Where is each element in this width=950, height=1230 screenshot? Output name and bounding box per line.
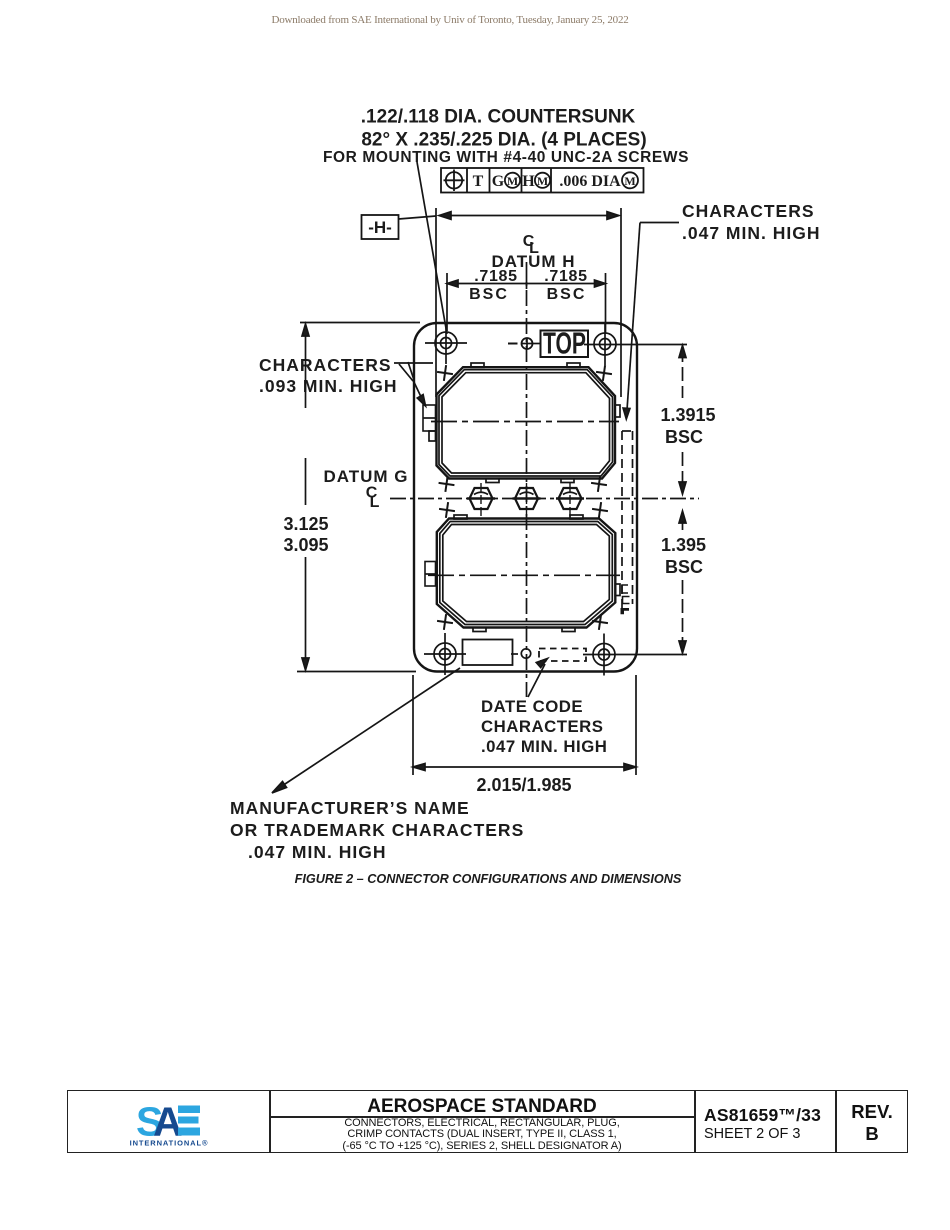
- svg-text:CHARACTERS: CHARACTERS: [682, 201, 815, 221]
- svg-text:DATE CODE: DATE CODE: [481, 697, 583, 716]
- svg-text:CHARACTERS: CHARACTERS: [259, 355, 392, 375]
- svg-text:.7185: .7185: [474, 268, 518, 285]
- svg-text:BSC: BSC: [665, 427, 703, 447]
- svg-text:BSC: BSC: [469, 286, 509, 303]
- svg-text:3.095: 3.095: [283, 535, 328, 555]
- svg-text:OR TRADEMARK CHARACTERS: OR TRADEMARK CHARACTERS: [230, 820, 524, 840]
- svg-text:.122/.118 DIA. COUNTERSUNK: .122/.118 DIA. COUNTERSUNK: [361, 107, 636, 128]
- svg-text:M: M: [624, 174, 635, 188]
- svg-text:L: L: [370, 494, 380, 511]
- svg-text:.093 MIN. HIGH: .093 MIN. HIGH: [259, 376, 397, 396]
- svg-text:3.125: 3.125: [283, 514, 328, 534]
- svg-text:1.3915: 1.3915: [660, 405, 715, 425]
- svg-text:FIGURE 2 – CONNECTOR CONFIGURA: FIGURE 2 – CONNECTOR CONFIGURATIONS AND …: [295, 872, 682, 886]
- svg-text:1.395: 1.395: [661, 535, 706, 555]
- svg-text:MANUFACTURER’S NAME: MANUFACTURER’S NAME: [230, 798, 470, 818]
- svg-text:DATUM G: DATUM G: [323, 467, 408, 486]
- svg-text:CHARACTERS: CHARACTERS: [481, 717, 603, 736]
- svg-text:.047 MIN. HIGH: .047 MIN. HIGH: [682, 223, 820, 243]
- svg-text:82° X .235/.225 DIA. (4 PLACES: 82° X .235/.225 DIA. (4 PLACES): [361, 130, 646, 151]
- svg-text:.047 MIN. HIGH: .047 MIN. HIGH: [248, 842, 386, 862]
- svg-text:BSC: BSC: [547, 286, 587, 303]
- svg-text:BSC: BSC: [665, 557, 703, 577]
- svg-text:M: M: [537, 174, 548, 188]
- svg-text:.047 MIN. HIGH: .047 MIN. HIGH: [481, 737, 607, 756]
- svg-text:.7185: .7185: [544, 268, 588, 285]
- svg-text:T: T: [473, 173, 484, 190]
- svg-text:INTERNATIONAL®: INTERNATIONAL®: [130, 1139, 208, 1148]
- svg-text:.006 DIA: .006 DIA: [559, 173, 621, 190]
- svg-text:FOR MOUNTING WITH #4-40 UNC-2A: FOR MOUNTING WITH #4-40 UNC-2A SCREWS: [323, 149, 689, 166]
- svg-text:TOP: TOP: [543, 326, 586, 361]
- svg-text:2.015/1.985: 2.015/1.985: [476, 775, 571, 795]
- svg-text:G: G: [492, 173, 505, 190]
- svg-text:-H-: -H-: [368, 218, 392, 237]
- svg-text:M: M: [507, 174, 518, 188]
- svg-text:H: H: [522, 173, 535, 190]
